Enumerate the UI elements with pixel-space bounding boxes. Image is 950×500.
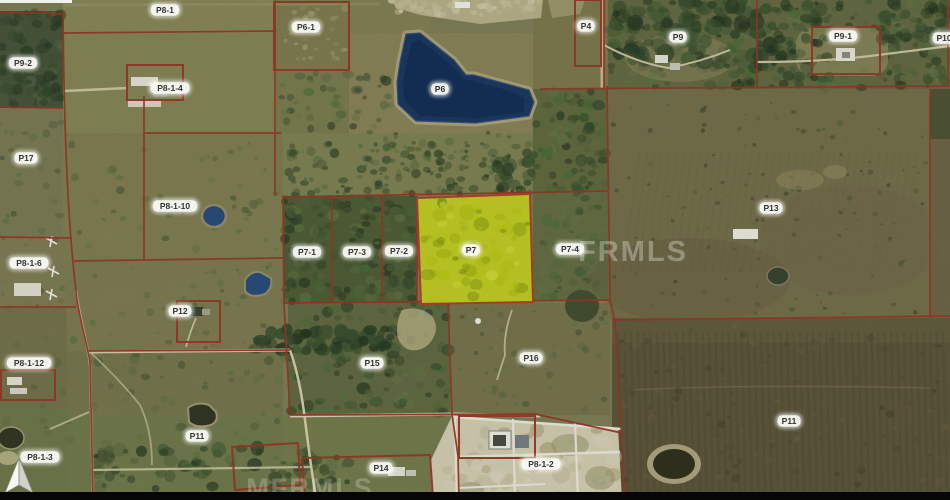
svg-text:P7-3: P7-3 <box>348 247 366 257</box>
svg-text:P11: P11 <box>190 431 205 441</box>
svg-text:P8-1-12: P8-1-12 <box>14 358 45 368</box>
svg-text:P12: P12 <box>172 306 187 316</box>
svg-text:P9: P9 <box>673 32 684 42</box>
svg-text:P7-2: P7-2 <box>390 246 408 256</box>
svg-text:P6: P6 <box>435 84 446 94</box>
svg-text:P13: P13 <box>763 203 778 213</box>
svg-text:P15: P15 <box>364 358 379 368</box>
svg-text:P11: P11 <box>782 416 797 426</box>
svg-text:P7-4: P7-4 <box>561 244 579 254</box>
svg-text:P8-1-10: P8-1-10 <box>160 201 191 211</box>
svg-text:P8-1: P8-1 <box>156 5 174 15</box>
svg-text:P8-1-6: P8-1-6 <box>16 258 42 268</box>
svg-text:P8-1-2: P8-1-2 <box>528 459 554 469</box>
svg-text:P9-1: P9-1 <box>834 31 852 41</box>
svg-text:P7-1: P7-1 <box>298 247 316 257</box>
svg-text:P16: P16 <box>523 353 538 363</box>
svg-text:FRMLS: FRMLS <box>578 236 688 268</box>
svg-text:P4: P4 <box>581 21 592 31</box>
svg-text:P14: P14 <box>373 463 388 473</box>
svg-text:P7: P7 <box>466 245 477 255</box>
svg-text:P9-2: P9-2 <box>14 58 32 68</box>
svg-text:P6-1: P6-1 <box>297 22 315 32</box>
svg-text:P8-1-3: P8-1-3 <box>27 452 53 462</box>
svg-text:P17: P17 <box>18 153 33 163</box>
svg-text:P10: P10 <box>936 33 950 43</box>
svg-text:P8-1-4: P8-1-4 <box>157 83 183 93</box>
